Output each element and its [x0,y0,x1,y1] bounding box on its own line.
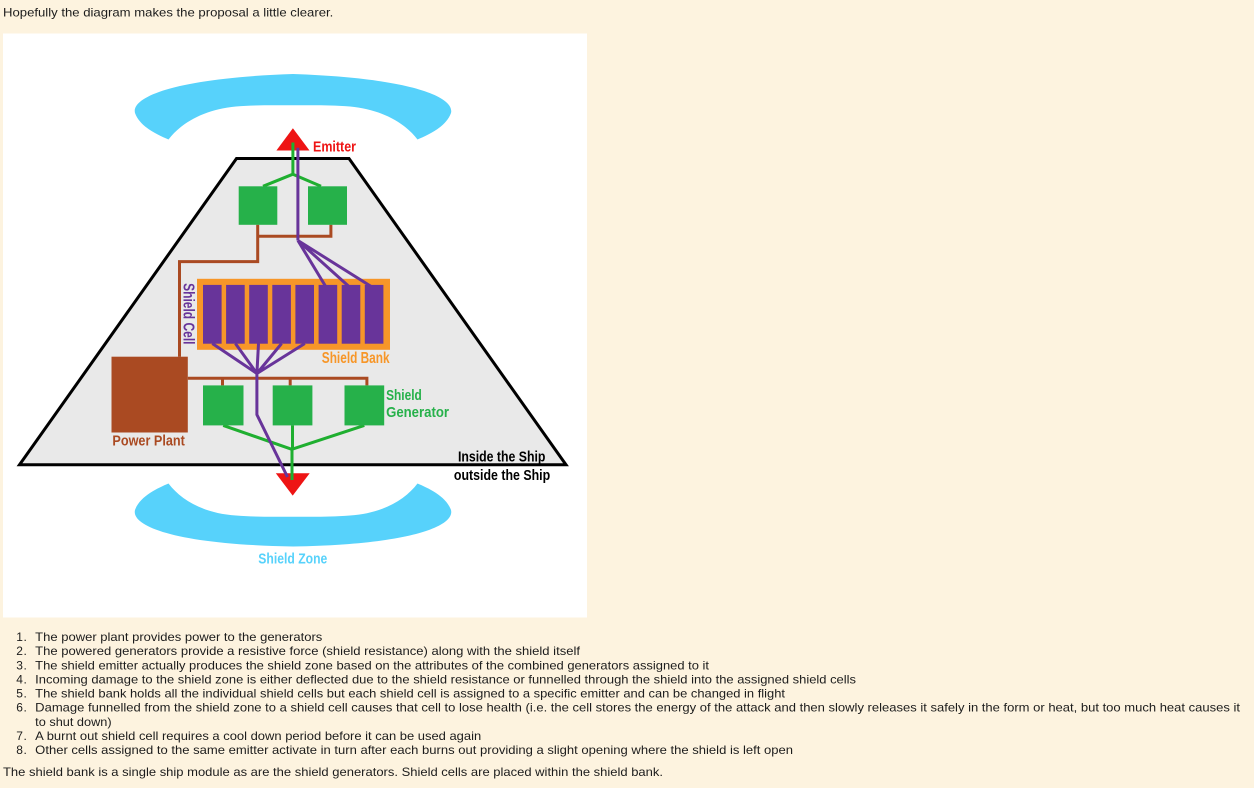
svg-text:Shield Bank: Shield Bank [322,350,390,367]
svg-text:Inside the Ship: Inside the Ship [458,449,545,466]
svg-text:Hopefully the diagram makes th: Hopefully the diagram makes the proposal… [3,6,333,20]
svg-text:Emitter: Emitter [313,138,356,155]
svg-text:4.: 4. [16,672,27,686]
svg-text:Generator: Generator [386,404,449,421]
svg-text:8.: 8. [16,743,27,757]
svg-text:The shield bank is a single sh: The shield bank is a single ship module … [3,765,663,779]
svg-text:7.: 7. [16,729,27,743]
svg-text:Other cells assigned to the sa: Other cells assigned to the same emitter… [35,743,793,757]
svg-text:6.: 6. [16,701,27,715]
svg-text:1.: 1. [16,630,27,644]
svg-text:Shield Cell: Shield Cell [180,283,197,344]
svg-text:Power Plant: Power Plant [112,433,184,450]
svg-text:The shield bank holds all the: The shield bank holds all the individual… [35,687,786,701]
svg-text:5.: 5. [16,687,27,701]
svg-text:Shield Zone: Shield Zone [258,551,327,568]
svg-text:The powered generators provide: The powered generators provide a resisti… [35,644,581,658]
svg-text:3.: 3. [16,658,27,672]
svg-text:to shut down): to shut down) [35,715,111,729]
svg-text:Shield: Shield [386,387,422,404]
svg-text:Damage funnelled from the shie: Damage funnelled from the shield zone to… [35,701,1241,715]
svg-text:2.: 2. [16,644,27,658]
svg-text:Incoming damage to the shield: Incoming damage to the shield zone is ei… [35,672,856,686]
svg-text:A burnt out shield cell requir: A burnt out shield cell requires a cool … [35,729,481,743]
svg-text:outside the Ship: outside the Ship [454,467,550,484]
svg-text:The shield emitter actually pr: The shield emitter actually produces the… [35,658,710,672]
svg-text:The power plant provides power: The power plant provides power to the ge… [35,630,322,644]
